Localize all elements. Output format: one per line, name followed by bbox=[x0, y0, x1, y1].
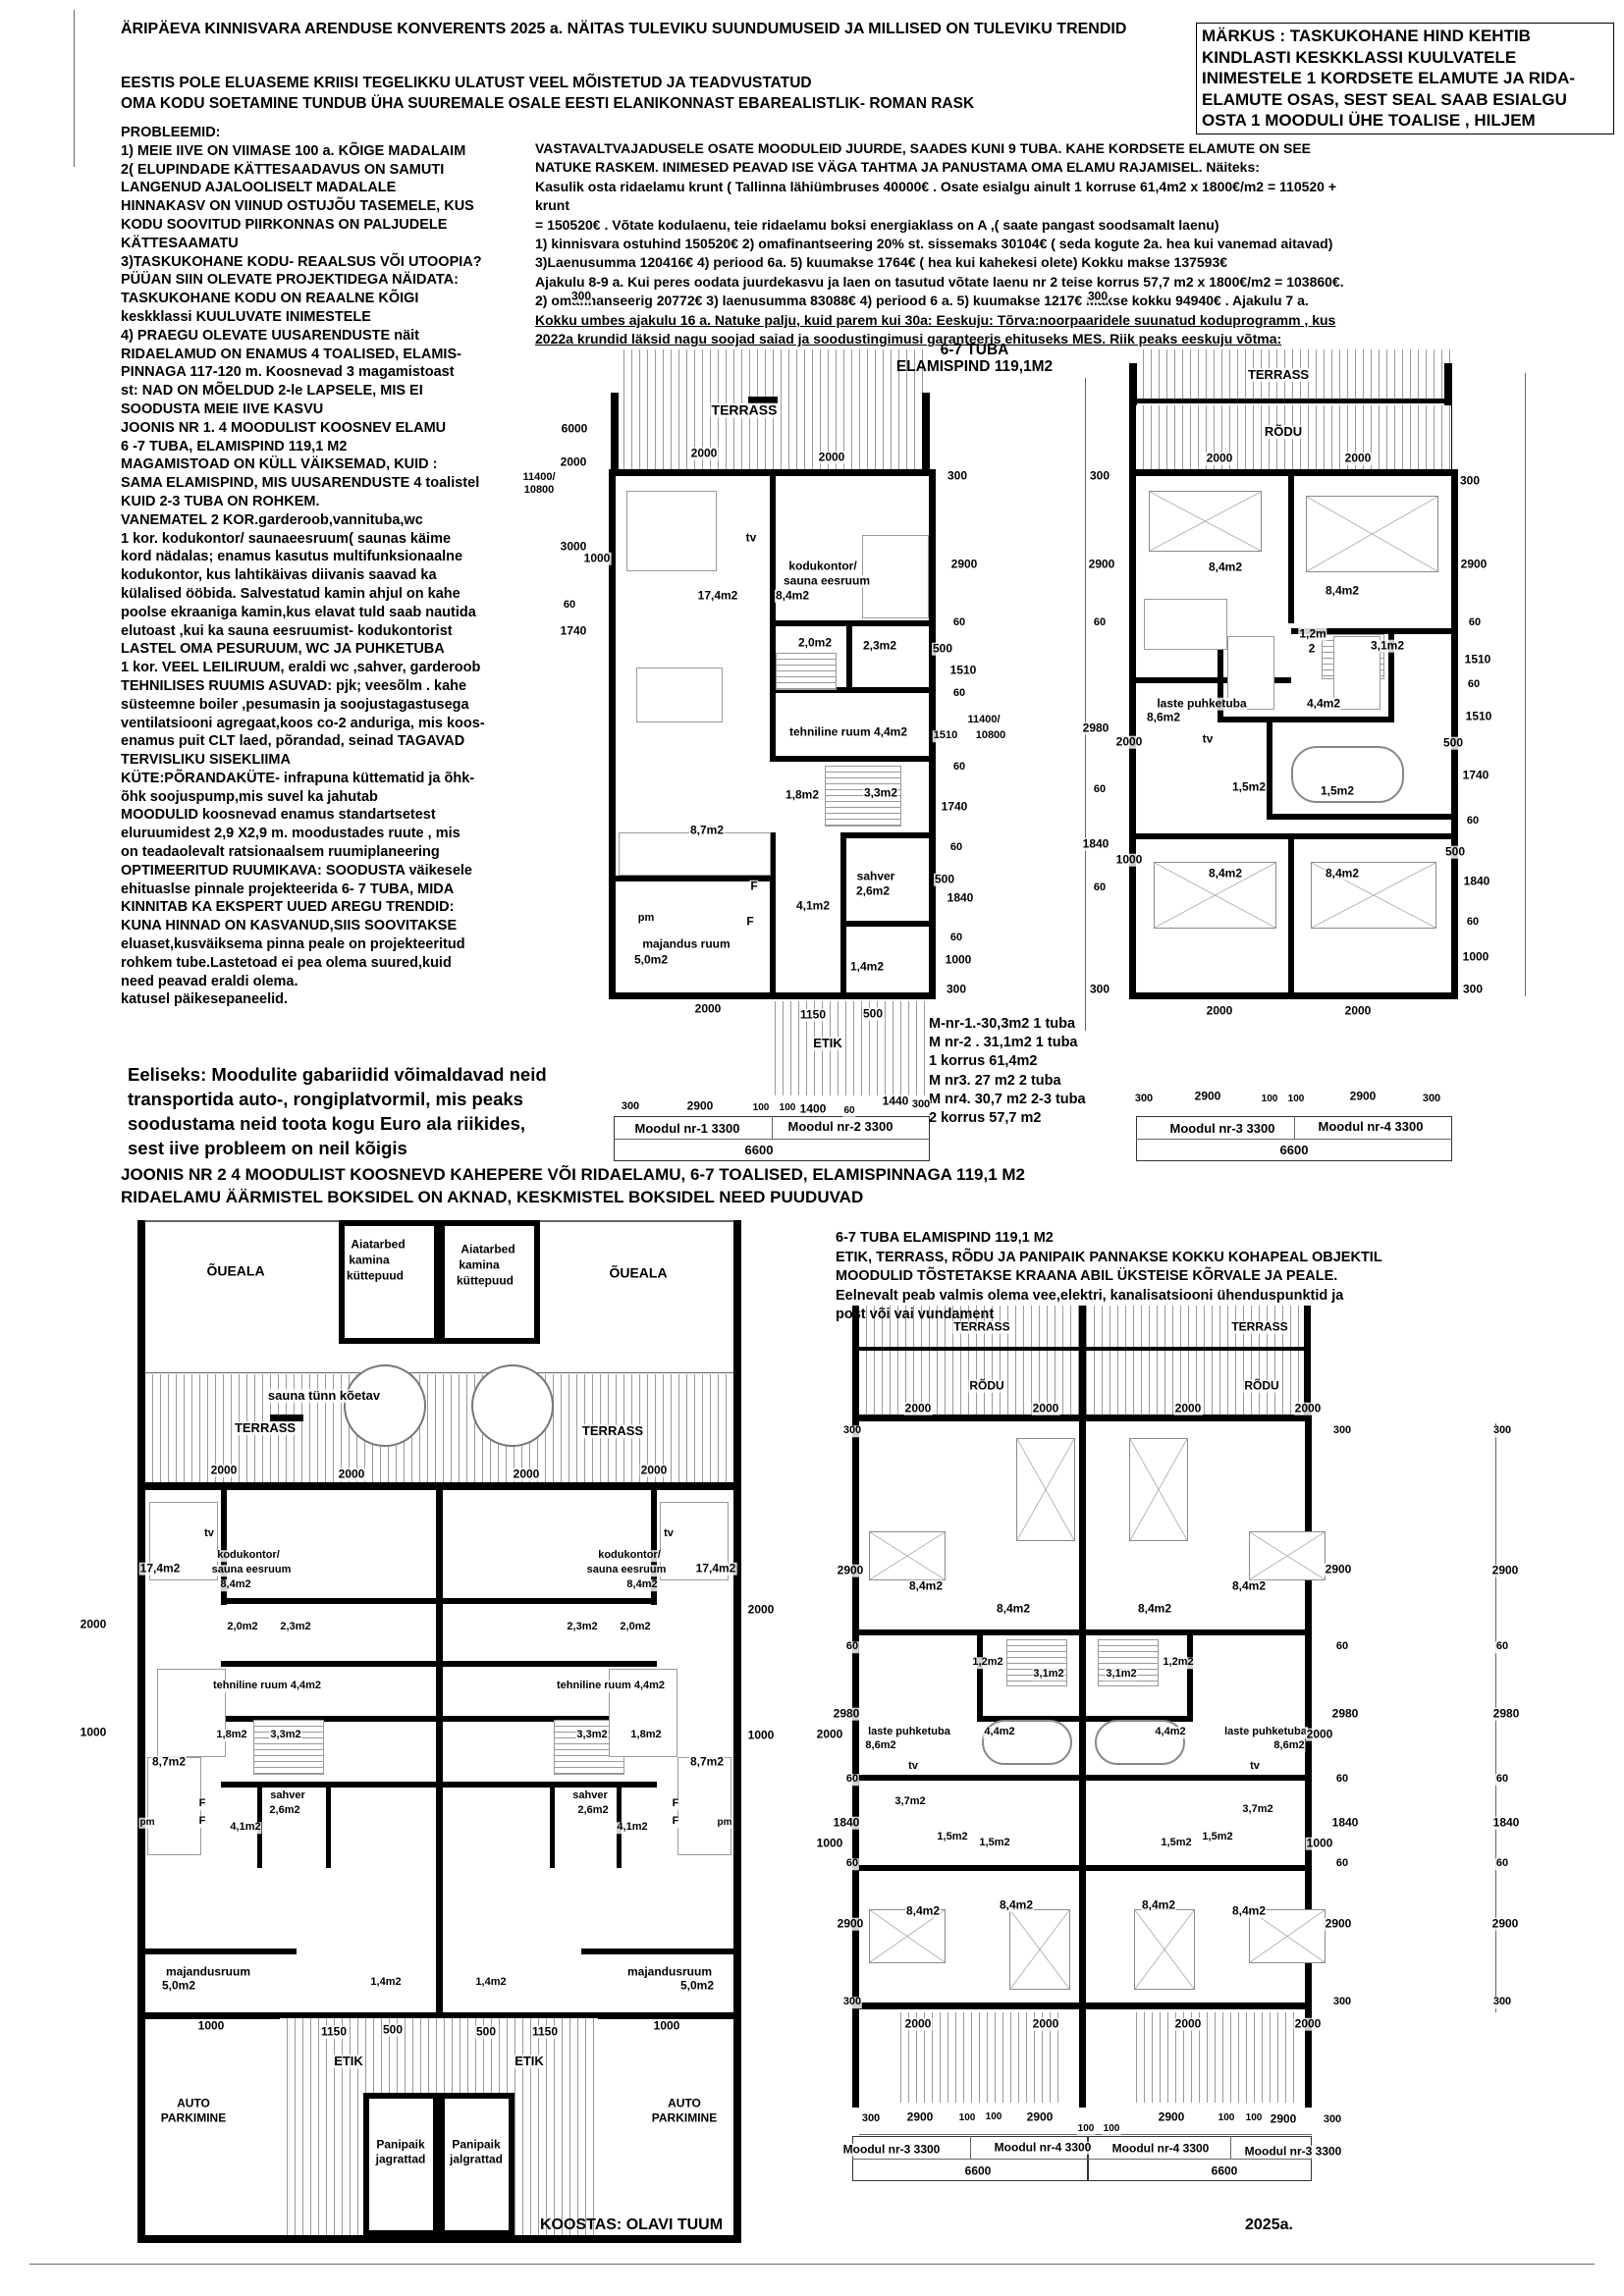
plan-label: 8,4m2 bbox=[1325, 868, 1360, 881]
plan-label: laste puhketuba bbox=[1223, 1727, 1308, 1738]
plan-label: 60 bbox=[1093, 617, 1107, 629]
plan-label: 6600 bbox=[744, 1144, 775, 1157]
plan-label: 1840 bbox=[947, 892, 975, 905]
plan-label: 1440 bbox=[882, 1095, 910, 1108]
plan-label: 1510 bbox=[1465, 711, 1493, 723]
plan-label: 1,5m2 bbox=[1231, 781, 1267, 794]
plan-label: 8,4m2 bbox=[1137, 1603, 1172, 1616]
plan-label: 2,6m2 bbox=[576, 1805, 609, 1817]
plan-label: 1,8m2 bbox=[629, 1730, 662, 1741]
plan-label: pm bbox=[139, 1818, 156, 1829]
plan-label: 2900 bbox=[1460, 559, 1489, 571]
plan-label: 3,3m2 bbox=[575, 1730, 608, 1741]
plan-label: 500 bbox=[934, 874, 955, 886]
plan-label: sauna eesruum bbox=[783, 575, 871, 588]
plan-label: Aiatarbed bbox=[350, 1239, 406, 1252]
plan-label: F bbox=[672, 1816, 680, 1828]
plan-label: sauna eesruum bbox=[211, 1565, 293, 1576]
plan-label: 300 bbox=[1459, 475, 1481, 488]
plan-label: 4,1m2 bbox=[795, 900, 831, 913]
plan-label: 2000 bbox=[338, 1468, 366, 1481]
plan-label: kodukontor/ bbox=[597, 1550, 662, 1562]
plan-label: 8,4m2 bbox=[1231, 1905, 1267, 1918]
plan-label: Moodul nr-2 3300 bbox=[787, 1120, 894, 1134]
plan-label: 8,4m2 bbox=[996, 1603, 1031, 1616]
plan-label: 1,2m2 bbox=[1162, 1657, 1194, 1669]
plan-label: TERRASS bbox=[234, 1421, 297, 1435]
plan-label: 17,4m2 bbox=[697, 590, 739, 603]
plan-label: 60 bbox=[1466, 816, 1480, 828]
plan-label: 2,6m2 bbox=[268, 1805, 300, 1817]
plan-label: 1,5m2 bbox=[936, 1832, 968, 1843]
plan-label: 2900 bbox=[1491, 1565, 1520, 1577]
plan-label: TERRASS bbox=[1230, 1321, 1288, 1334]
plan-label: 2000 bbox=[690, 448, 719, 460]
plan-label: pm bbox=[637, 913, 656, 925]
plan-label: 1,5m2 bbox=[1160, 1838, 1192, 1849]
plan-label: 100 bbox=[1077, 2124, 1096, 2135]
plan-label: kodukontor/ bbox=[216, 1550, 281, 1562]
plan-label: 2900 bbox=[837, 1565, 865, 1577]
plan-label: 2000 bbox=[1294, 1403, 1323, 1415]
plan-label: 60 bbox=[952, 688, 966, 700]
plan-label: 4,4m2 bbox=[983, 1727, 1015, 1738]
plan-label: 60 bbox=[1335, 1858, 1349, 1870]
plan-label: 2000 bbox=[1174, 2018, 1203, 2031]
plan-label: 8,6m2 bbox=[1272, 1740, 1305, 1752]
plan-label: majandus ruum bbox=[641, 938, 731, 951]
plan-label: 300 bbox=[1492, 1425, 1512, 1437]
plan-label: 60 bbox=[1335, 1774, 1349, 1786]
plan-label: AUTO bbox=[176, 2098, 211, 2110]
plan-label: majandusruum bbox=[165, 1966, 251, 1979]
plan-label: 60 bbox=[952, 762, 966, 774]
plan-label: 2000 bbox=[1032, 1403, 1060, 1415]
plan-label: 1000 bbox=[816, 1838, 844, 1850]
plan-label: 60 bbox=[949, 933, 963, 944]
plan-label: 1150 bbox=[531, 2026, 559, 2039]
plan-label: 3,1m2 bbox=[1370, 640, 1405, 653]
plan-label: 2900 bbox=[837, 1918, 865, 1931]
plan-label: 2000 bbox=[904, 1403, 933, 1415]
plan-label: F bbox=[749, 881, 758, 893]
plan-label: 300 bbox=[1089, 470, 1110, 483]
plan-label: kamina bbox=[458, 1259, 500, 1272]
plan-label: 2900 bbox=[1026, 2111, 1055, 2124]
plan-label: 300 bbox=[1332, 1997, 1352, 2008]
plan-label: 100 bbox=[985, 2112, 1003, 2123]
plan-label: 1740 bbox=[941, 801, 969, 814]
plan-label: kodukontor/ bbox=[787, 561, 857, 573]
plan-label: 6600 bbox=[964, 2165, 993, 2178]
plan-label: 1000 bbox=[1462, 951, 1490, 964]
plan-label: Moodul nr-4 3300 bbox=[994, 2142, 1093, 2155]
plan-label: 6000 bbox=[561, 423, 589, 436]
plan-label: sahver bbox=[571, 1790, 608, 1802]
plan-label: F bbox=[745, 916, 754, 929]
plan-label: 2,0m2 bbox=[226, 1622, 258, 1633]
plan-label: jalgrattad bbox=[449, 2154, 504, 2166]
plan-label: 2000 bbox=[80, 1619, 108, 1631]
plan-label: ÕUEALA bbox=[608, 1266, 668, 1281]
plan-label: 300 bbox=[1087, 291, 1109, 303]
plan-label: 2000 bbox=[747, 1604, 776, 1617]
plan-label: tv bbox=[663, 1528, 675, 1540]
plan-label: tv bbox=[745, 532, 758, 545]
plan-label: PARKIMINE bbox=[160, 2112, 227, 2125]
plan-label: 2000 bbox=[1294, 2018, 1323, 2031]
plan-label: 11400/ bbox=[966, 715, 1001, 726]
plan-label: 500 bbox=[1442, 737, 1464, 750]
plan-label: 100 bbox=[779, 1103, 797, 1114]
plan-label: 300 bbox=[1134, 1094, 1154, 1105]
plan-label: 5,0m2 bbox=[679, 1980, 715, 1993]
plan-label: 2980 bbox=[1331, 1708, 1360, 1721]
plan-label: sauna tünn kõetav bbox=[267, 1389, 381, 1403]
plan-label: 2980 bbox=[1082, 722, 1110, 735]
plan-label: 3,7m2 bbox=[1241, 1804, 1273, 1816]
plan-label: 3,3m2 bbox=[863, 787, 898, 800]
plan-label: 60 bbox=[1468, 617, 1482, 629]
plan-label: 2900 bbox=[1158, 2111, 1186, 2124]
plan-label: 60 bbox=[842, 1106, 855, 1117]
plan-label: 1000 bbox=[653, 2020, 681, 2033]
plan-label: 60 bbox=[1495, 1641, 1509, 1653]
plan-label: 4,1m2 bbox=[229, 1822, 261, 1834]
plan-label: 2900 bbox=[1325, 1918, 1353, 1931]
plan-label: 2900 bbox=[1349, 1091, 1378, 1103]
plan-label: 1740 bbox=[1462, 770, 1490, 782]
plan-label: 300 bbox=[911, 1099, 931, 1111]
plan-label: 2,0m2 bbox=[797, 637, 833, 650]
plan-label: Panipaik bbox=[375, 2139, 425, 2152]
plan-label: tv bbox=[1249, 1761, 1261, 1773]
plan-label: sahver bbox=[856, 871, 896, 883]
plan-label: 17,4m2 bbox=[139, 1563, 182, 1575]
plan-label: Moodul nr-4 3300 bbox=[1111, 2143, 1211, 2156]
plan-label: laste puhketuba bbox=[1156, 698, 1247, 711]
plan-label: 1740 bbox=[560, 625, 588, 638]
plan-label: RÕDU bbox=[968, 1380, 1004, 1393]
plan-label: 2900 bbox=[1270, 2113, 1298, 2126]
plan-label: 1400 bbox=[799, 1103, 828, 1116]
plan-label: sahver bbox=[269, 1790, 305, 1802]
plan-label: 300 bbox=[861, 2113, 881, 2125]
plan-label: 2980 bbox=[833, 1708, 861, 1721]
plan-label: 100 bbox=[1245, 2113, 1264, 2124]
plan-label: 2 bbox=[1308, 643, 1317, 656]
plan-label: 2900 bbox=[686, 1100, 715, 1113]
plan-label: F bbox=[672, 1798, 680, 1810]
plan-label: 1150 bbox=[320, 2026, 348, 2039]
plan-label: 1510 bbox=[949, 665, 978, 677]
plan-label: 1000 bbox=[945, 954, 973, 967]
plan-label: 1,4m2 bbox=[849, 961, 885, 974]
plan-label: 4,4m2 bbox=[1154, 1727, 1186, 1738]
plan-label: PARKIMINE bbox=[651, 2112, 718, 2125]
plan-label: 2000 bbox=[904, 2018, 933, 2031]
plan-label: sauna eesruum bbox=[586, 1565, 668, 1576]
plan-label: laste puhketuba bbox=[867, 1727, 951, 1738]
plan-label: pm bbox=[717, 1818, 733, 1829]
plan-label: tv bbox=[1202, 733, 1215, 746]
plan-label: 1,5m2 bbox=[1201, 1832, 1233, 1843]
plan-label: 1,2m bbox=[1298, 628, 1326, 641]
plan-label: 300 bbox=[621, 1101, 640, 1113]
plan-label: 60 bbox=[1495, 1774, 1509, 1786]
plan-label: Moodul nr-3 3300 bbox=[842, 2144, 942, 2157]
plan-label: 1150 bbox=[799, 1009, 827, 1022]
plan-label: 2,3m2 bbox=[566, 1622, 598, 1633]
plan-label: 300 bbox=[570, 291, 592, 303]
plan-label: 300 bbox=[1422, 1094, 1441, 1105]
plan-label: 60 bbox=[1093, 784, 1107, 796]
plan-label: F bbox=[198, 1798, 207, 1810]
plan-label: ETIK bbox=[812, 1037, 843, 1050]
plan-label: 8,7m2 bbox=[151, 1756, 187, 1769]
plan-label: 8,6m2 bbox=[864, 1740, 896, 1752]
plan-label: 2000 bbox=[1174, 1403, 1203, 1415]
plan-label: 1510 bbox=[933, 730, 958, 742]
plan-label: 8,4m2 bbox=[625, 1579, 658, 1591]
plan-label: 300 bbox=[947, 470, 968, 483]
plan-label: 100 bbox=[1261, 1095, 1279, 1105]
plan-label: 8,7m2 bbox=[689, 825, 725, 837]
plan-label: RÕDU bbox=[1243, 1380, 1279, 1393]
plan-label: 6600 bbox=[1211, 2165, 1239, 2178]
plan-label: Panipaik bbox=[451, 2139, 501, 2152]
plan-label: 8,4m2 bbox=[908, 1580, 944, 1593]
plan-label: 2900 bbox=[1194, 1091, 1222, 1103]
plan-label: tv bbox=[203, 1528, 215, 1540]
plan-label: 100 bbox=[1218, 2113, 1236, 2124]
plan-label: 8,4m2 bbox=[1231, 1580, 1267, 1593]
plan-label: 3,1m2 bbox=[1105, 1669, 1137, 1681]
plan-label: Moodul nr-1 3300 bbox=[634, 1122, 741, 1136]
plan-label: tehniline ruum 4,4m2 bbox=[556, 1681, 666, 1692]
plan-label: 8,4m2 bbox=[1208, 868, 1243, 881]
plan-label: 11400/ bbox=[521, 472, 556, 484]
plan-label: 17,4m2 bbox=[695, 1563, 737, 1575]
plan-label: 300 bbox=[1089, 984, 1110, 996]
plan-label: 2000 bbox=[816, 1729, 844, 1741]
plan-label: TERRASS bbox=[711, 403, 779, 418]
plan-label: 2000 bbox=[1032, 2018, 1060, 2031]
plan-label: 8,4m2 bbox=[1325, 585, 1360, 598]
plan-label: 2000 bbox=[1206, 1005, 1234, 1018]
plan-label: 2000 bbox=[560, 456, 588, 469]
plan-label: 60 bbox=[952, 617, 966, 629]
plan-label: ÕUEALA bbox=[205, 1264, 265, 1279]
plan-label: Moodul nr-3 3300 bbox=[1244, 2146, 1343, 2159]
plan-label: Moodul nr-4 3300 bbox=[1318, 1120, 1425, 1134]
plan-label: 2000 bbox=[1206, 453, 1234, 465]
plan-label: 2000 bbox=[640, 1465, 669, 1477]
plan-label: 1,4m2 bbox=[369, 1977, 402, 1989]
plan-label: 4,1m2 bbox=[616, 1822, 648, 1834]
plan-label: 2000 bbox=[694, 1003, 723, 1016]
plan-label: 500 bbox=[862, 1008, 884, 1021]
plan-label: 1,5m2 bbox=[978, 1838, 1010, 1849]
plan-label: Aiatarbed bbox=[460, 1244, 515, 1256]
plan-label: 1840 bbox=[1082, 838, 1110, 851]
plan-label: 60 bbox=[845, 1858, 859, 1870]
plan-label: 1840 bbox=[1492, 1817, 1521, 1830]
plan-label: 2000 bbox=[1344, 453, 1373, 465]
plan-label: 300 bbox=[946, 984, 967, 996]
plan-label: 2000 bbox=[210, 1465, 239, 1477]
plan-label: 10800 bbox=[975, 730, 1007, 742]
plan-label: F bbox=[198, 1816, 207, 1828]
plan-label: ETIK bbox=[514, 2055, 545, 2068]
plan-label: 60 bbox=[845, 1774, 859, 1786]
plan-label: 2900 bbox=[906, 2111, 935, 2124]
plan-label: RÕDU bbox=[1264, 425, 1303, 439]
plan-label: 60 bbox=[949, 842, 963, 854]
plan-label: 60 bbox=[1093, 882, 1107, 894]
plan-label: 60 bbox=[1466, 917, 1480, 929]
plan-label: 8,4m2 bbox=[1208, 561, 1243, 574]
plan-label: 2000 bbox=[513, 1468, 541, 1481]
plan-label: 5,0m2 bbox=[633, 954, 669, 967]
plan-label: 300 bbox=[1323, 2114, 1342, 2126]
plan-label: 8,4m2 bbox=[1141, 1899, 1176, 1912]
plan-label: 8,7m2 bbox=[689, 1756, 725, 1769]
plan-label: 2,3m2 bbox=[862, 640, 897, 653]
plan-label: 2900 bbox=[1088, 559, 1116, 571]
plan-label: 2900 bbox=[950, 559, 979, 571]
plan-label: 1,8m2 bbox=[785, 789, 820, 802]
plan-label: 300 bbox=[1492, 1997, 1512, 2008]
plan-label: AUTO bbox=[667, 2098, 702, 2110]
plan-label: 500 bbox=[932, 643, 953, 656]
plan-label: 3,3m2 bbox=[269, 1730, 301, 1741]
plan-label: tv bbox=[907, 1761, 919, 1773]
plan-label: jagrattad bbox=[375, 2154, 427, 2166]
plan-label: 100 bbox=[752, 1103, 771, 1114]
plan-label: 60 bbox=[845, 1641, 859, 1653]
plan-label: 2900 bbox=[1491, 1918, 1520, 1931]
plan-label: 500 bbox=[475, 2026, 497, 2039]
floor-plan-labels: TERRASS20002000tvkodukontor/sauna eesruu… bbox=[0, 0, 1624, 2296]
plan-label: 1,5m2 bbox=[1320, 785, 1355, 798]
plan-label: 3,7m2 bbox=[893, 1796, 926, 1808]
plan-label: 2980 bbox=[1492, 1708, 1521, 1721]
plan-label: 100 bbox=[1287, 1095, 1306, 1105]
plan-label: kamina bbox=[348, 1255, 390, 1267]
plan-label: 100 bbox=[958, 2113, 977, 2124]
plan-label: 8,4m2 bbox=[775, 590, 810, 603]
plan-label: 60 bbox=[1495, 1858, 1509, 1870]
plan-label: 2,3m2 bbox=[279, 1622, 311, 1633]
plan-label: 60 bbox=[1467, 679, 1481, 691]
plan-label: 1000 bbox=[1115, 854, 1144, 867]
plan-label: tehniline ruum 4,4m2 bbox=[212, 1681, 322, 1692]
plan-label: 500 bbox=[382, 2024, 404, 2037]
plan-label: 2,6m2 bbox=[855, 885, 891, 898]
plan-label: 1,2m2 bbox=[971, 1657, 1003, 1669]
plan-label: küttepuud bbox=[346, 1270, 405, 1283]
plan-label: 60 bbox=[1335, 1641, 1349, 1653]
plan-label: 500 bbox=[1444, 846, 1466, 859]
plan-label: 3,1m2 bbox=[1032, 1669, 1064, 1681]
plan-label: TERRASS bbox=[952, 1321, 1010, 1334]
plan-label: 2000 bbox=[1306, 1729, 1334, 1741]
plan-label: 1,4m2 bbox=[474, 1977, 507, 1989]
plan-label: 2900 bbox=[1325, 1564, 1353, 1576]
plan-label: 1840 bbox=[1463, 876, 1491, 888]
plan-label: 6600 bbox=[1279, 1144, 1310, 1157]
plan-label: 1000 bbox=[583, 553, 612, 565]
plan-label: 300 bbox=[842, 1425, 862, 1437]
plan-label: 1840 bbox=[1331, 1817, 1360, 1830]
plan-label: 100 bbox=[1103, 2124, 1121, 2135]
plan-label: tehniline ruum 4,4m2 bbox=[788, 726, 908, 739]
plan-label: 5,0m2 bbox=[161, 1980, 196, 1993]
plan-label: Moodul nr-3 3300 bbox=[1169, 1122, 1276, 1136]
plan-label: 10800 bbox=[523, 485, 556, 497]
plan-label: 8,4m2 bbox=[219, 1579, 251, 1591]
plan-label: küttepuud bbox=[456, 1275, 514, 1288]
plan-label: majandusruum bbox=[626, 1966, 713, 1979]
document-page: { "palette": {"ink": "#000000", "paper":… bbox=[0, 0, 1624, 2296]
plan-label: 1840 bbox=[833, 1817, 861, 1830]
plan-label: 60 bbox=[563, 600, 576, 612]
plan-label: 2000 bbox=[1344, 1005, 1373, 1018]
plan-label: 4,4m2 bbox=[1306, 698, 1341, 711]
plan-label: TERRASS bbox=[581, 1424, 644, 1438]
plan-label: 300 bbox=[842, 1997, 862, 2008]
plan-label: 2000 bbox=[1115, 736, 1144, 749]
plan-label: 1000 bbox=[197, 2020, 226, 2033]
plan-label: 1510 bbox=[1464, 654, 1492, 667]
plan-label: 300 bbox=[1332, 1425, 1352, 1437]
plan-label: 1,8m2 bbox=[215, 1730, 247, 1741]
plan-label: 2,0m2 bbox=[619, 1622, 651, 1633]
plan-label: ETIK bbox=[333, 2055, 364, 2068]
plan-label: 1000 bbox=[747, 1730, 776, 1742]
plan-label: 300 bbox=[1462, 984, 1484, 996]
plan-label: 1000 bbox=[1306, 1838, 1334, 1850]
plan-label: 8,4m2 bbox=[905, 1905, 941, 1918]
plan-label: TERRASS bbox=[1247, 368, 1310, 382]
plan-label: 2000 bbox=[818, 452, 846, 464]
plan-label: 8,4m2 bbox=[999, 1899, 1034, 1912]
plan-label: 1000 bbox=[80, 1727, 108, 1739]
plan-label: 8,6m2 bbox=[1146, 712, 1181, 724]
